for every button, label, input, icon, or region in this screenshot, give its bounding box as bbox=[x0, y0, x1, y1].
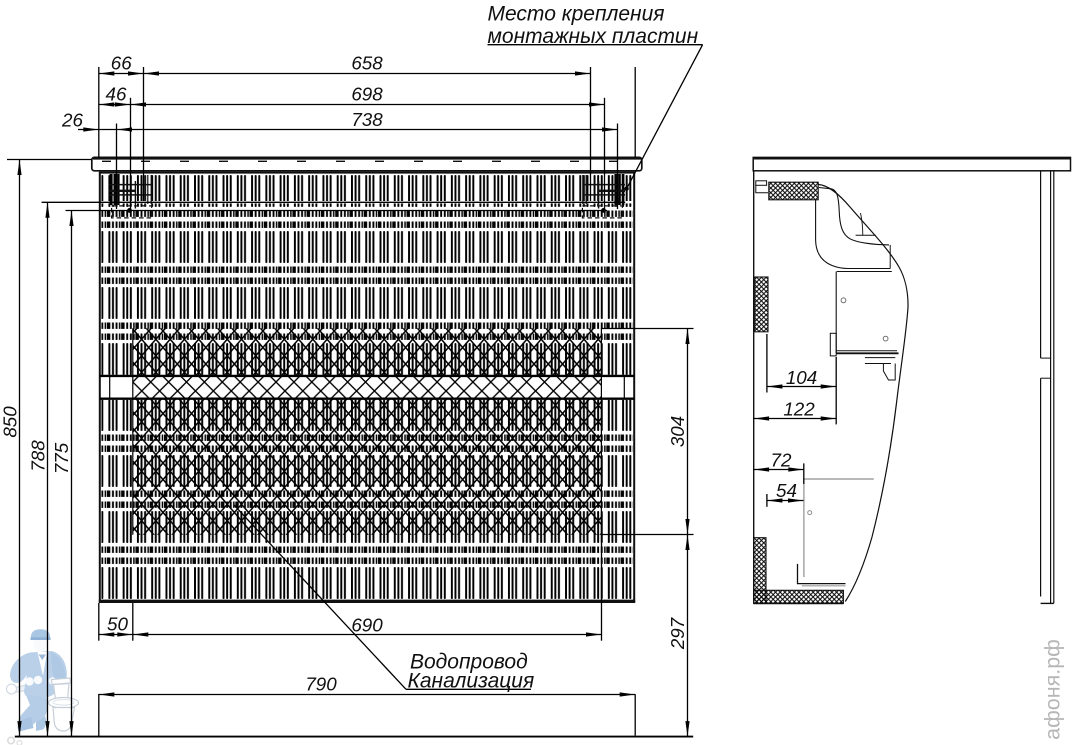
svg-text:46: 46 bbox=[106, 84, 127, 105]
svg-text:850: 850 bbox=[0, 406, 21, 438]
svg-text:афоня.рф: афоня.рф bbox=[1041, 639, 1065, 740]
svg-text:монтажных пластин: монтажных пластин bbox=[488, 25, 699, 48]
svg-text:297: 297 bbox=[667, 616, 688, 650]
svg-text:72: 72 bbox=[771, 450, 792, 471]
svg-text:54: 54 bbox=[776, 480, 797, 501]
svg-text:658: 658 bbox=[351, 53, 383, 74]
svg-text:122: 122 bbox=[783, 399, 815, 420]
svg-text:775: 775 bbox=[51, 442, 72, 474]
svg-text:Канализация: Канализация bbox=[408, 670, 535, 693]
svg-text:790: 790 bbox=[305, 674, 337, 695]
svg-text:788: 788 bbox=[28, 440, 49, 472]
svg-text:Место крепления: Место крепления bbox=[488, 3, 665, 26]
svg-text:738: 738 bbox=[351, 109, 383, 130]
svg-text:698: 698 bbox=[351, 84, 383, 105]
svg-text:104: 104 bbox=[786, 367, 817, 388]
svg-text:304: 304 bbox=[667, 416, 688, 447]
svg-text:50: 50 bbox=[107, 614, 128, 635]
svg-text:690: 690 bbox=[351, 615, 383, 636]
svg-text:26: 26 bbox=[61, 110, 83, 131]
svg-text:66: 66 bbox=[111, 53, 132, 74]
